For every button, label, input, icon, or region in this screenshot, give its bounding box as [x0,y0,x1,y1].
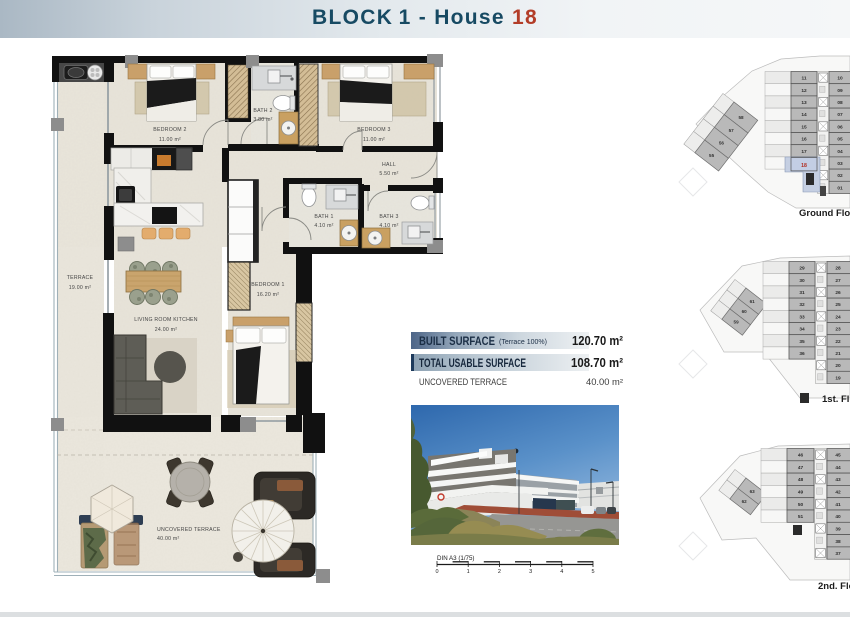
svg-text:40: 40 [835,514,841,520]
svg-text:61: 61 [750,299,756,304]
svg-text:48: 48 [798,477,804,483]
svg-text:42: 42 [835,490,841,496]
svg-text:46: 46 [798,453,804,459]
svg-text:11.00 m²: 11.00 m² [159,137,181,143]
svg-text:43: 43 [835,477,841,483]
svg-text:HALL: HALL [382,162,396,168]
svg-text:21: 21 [835,351,841,357]
svg-text:4.10 m²: 4.10 m² [314,223,333,229]
svg-text:18: 18 [801,163,807,169]
svg-text:26: 26 [835,290,841,296]
svg-text:BATH 1: BATH 1 [314,214,333,220]
svg-text:UNCOVERED TERRACE: UNCOVERED TERRACE [419,377,507,387]
svg-text:02: 02 [837,173,843,179]
svg-text:33: 33 [799,314,805,320]
svg-text:47: 47 [798,465,804,471]
svg-text:09: 09 [837,88,843,94]
svg-text:17: 17 [801,149,807,155]
svg-text:37: 37 [835,551,841,557]
svg-text:LIVING ROOM KITCHEN: LIVING ROOM KITCHEN [134,317,198,323]
svg-text:55: 55 [709,153,715,158]
svg-text:20: 20 [835,363,841,369]
svg-text:5.50 m²: 5.50 m² [379,171,398,177]
svg-text:27: 27 [835,278,841,284]
svg-text:4.10 m²: 4.10 m² [379,223,398,229]
svg-text:04: 04 [837,149,843,155]
svg-text:BEDROOM 1: BEDROOM 1 [251,282,284,288]
svg-text:19: 19 [835,375,841,381]
svg-text:41: 41 [835,502,841,508]
svg-text:11: 11 [801,76,806,82]
svg-text:58: 58 [738,115,744,120]
svg-text:06: 06 [837,124,843,130]
svg-text:23: 23 [835,327,841,333]
svg-text:50: 50 [798,502,804,508]
svg-text:BEDROOM 2: BEDROOM 2 [153,127,186,133]
svg-text:05: 05 [837,137,843,143]
svg-text:10: 10 [837,76,843,82]
svg-text:22: 22 [835,339,841,345]
svg-text:108.70 m²: 108.70 m² [571,356,623,370]
svg-text:16.20 m²: 16.20 m² [257,292,279,298]
svg-text:16: 16 [801,137,807,143]
svg-text:32: 32 [799,302,805,308]
svg-text:45: 45 [835,453,841,459]
svg-text:BEDROOM 3: BEDROOM 3 [357,127,390,133]
svg-text:120.70 m²: 120.70 m² [572,334,623,348]
svg-text:5: 5 [591,569,594,575]
svg-text:01: 01 [837,185,843,191]
svg-text:1: 1 [467,569,470,575]
svg-text:35: 35 [799,339,805,345]
svg-text:2: 2 [498,569,501,575]
svg-text:29: 29 [799,266,805,272]
svg-text:25: 25 [835,302,841,308]
svg-text:13: 13 [801,100,807,106]
svg-text:07: 07 [837,112,843,118]
svg-text:Ground Floor: Ground Floor [799,208,850,219]
svg-text:59: 59 [734,320,740,325]
svg-text:08: 08 [837,100,843,106]
svg-text:0: 0 [435,569,438,575]
svg-text:(Terrace 100%): (Terrace 100%) [499,339,547,346]
svg-text:TERRACE: TERRACE [67,275,94,281]
svg-text:BUILT SURFACE: BUILT SURFACE [419,334,495,348]
svg-text:44: 44 [835,465,841,471]
svg-text:1st. Floor: 1st. Floor [822,394,850,405]
svg-text:62: 62 [742,499,748,504]
svg-text:BATH 3: BATH 3 [379,214,398,220]
svg-text:40.00 m²: 40.00 m² [157,536,179,542]
svg-text:30: 30 [799,278,805,284]
svg-text:3: 3 [529,569,532,575]
svg-text:28: 28 [835,266,841,272]
svg-text:57: 57 [729,128,735,133]
svg-text:56: 56 [719,140,725,145]
svg-text:BATH 2: BATH 2 [253,108,272,114]
svg-text:14: 14 [801,112,807,118]
svg-text:63: 63 [750,489,756,494]
svg-text:24: 24 [835,314,841,320]
svg-text:40.00 m²: 40.00 m² [586,377,623,387]
svg-text:51: 51 [798,514,804,520]
svg-text:03: 03 [837,161,843,167]
svg-text:24.00 m²: 24.00 m² [155,327,177,333]
svg-text:19.00 m²: 19.00 m² [69,285,91,291]
svg-text:DIN A3 (1/75): DIN A3 (1/75) [437,555,474,562]
svg-text:38: 38 [835,539,841,545]
svg-text:11.00 m²: 11.00 m² [363,137,385,143]
svg-text:UNCOVERED TERRACE: UNCOVERED TERRACE [157,527,221,533]
svg-text:4: 4 [560,569,563,575]
svg-text:49: 49 [798,490,804,496]
svg-text:15: 15 [801,124,807,130]
svg-text:39: 39 [835,526,841,532]
svg-text:60: 60 [742,309,748,314]
svg-text:36: 36 [799,351,805,357]
svg-text:3.80 m²: 3.80 m² [253,117,272,123]
svg-text:2nd. Floor: 2nd. Floor [818,581,850,592]
svg-text:TOTAL USABLE SURFACE: TOTAL USABLE SURFACE [419,356,526,370]
svg-text:34: 34 [799,327,805,333]
svg-text:12: 12 [801,88,807,94]
svg-text:31: 31 [799,290,805,296]
